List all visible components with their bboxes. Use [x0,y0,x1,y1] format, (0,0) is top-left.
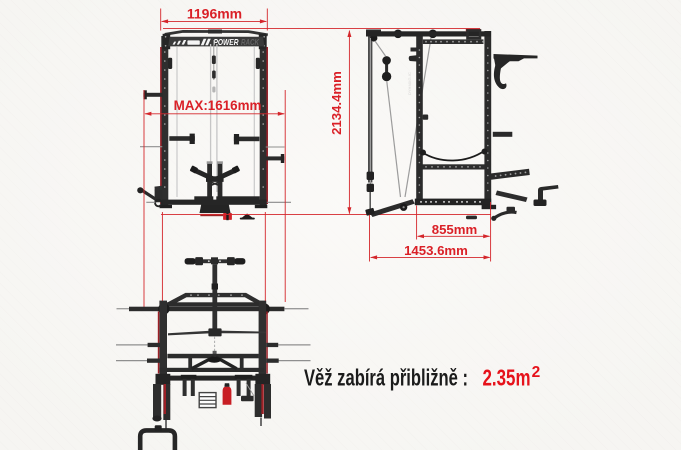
svg-text:2.35m: 2.35m [483,364,531,390]
svg-text:DYHMXG-IC: DYHMXG-IC [407,72,412,95]
svg-text:1453.6mm: 1453.6mm [404,243,468,258]
svg-text:855mm: 855mm [432,222,477,237]
svg-text:RACK: RACK [241,38,260,47]
svg-text:MAX:1616mm: MAX:1616mm [174,98,262,113]
svg-text:Věž zabírá přibližně :: Věž zabírá přibližně : [304,364,468,390]
svg-text:2134.4mm: 2134.4mm [329,71,344,135]
svg-text:1196mm: 1196mm [187,6,242,22]
svg-text:2: 2 [532,364,541,381]
